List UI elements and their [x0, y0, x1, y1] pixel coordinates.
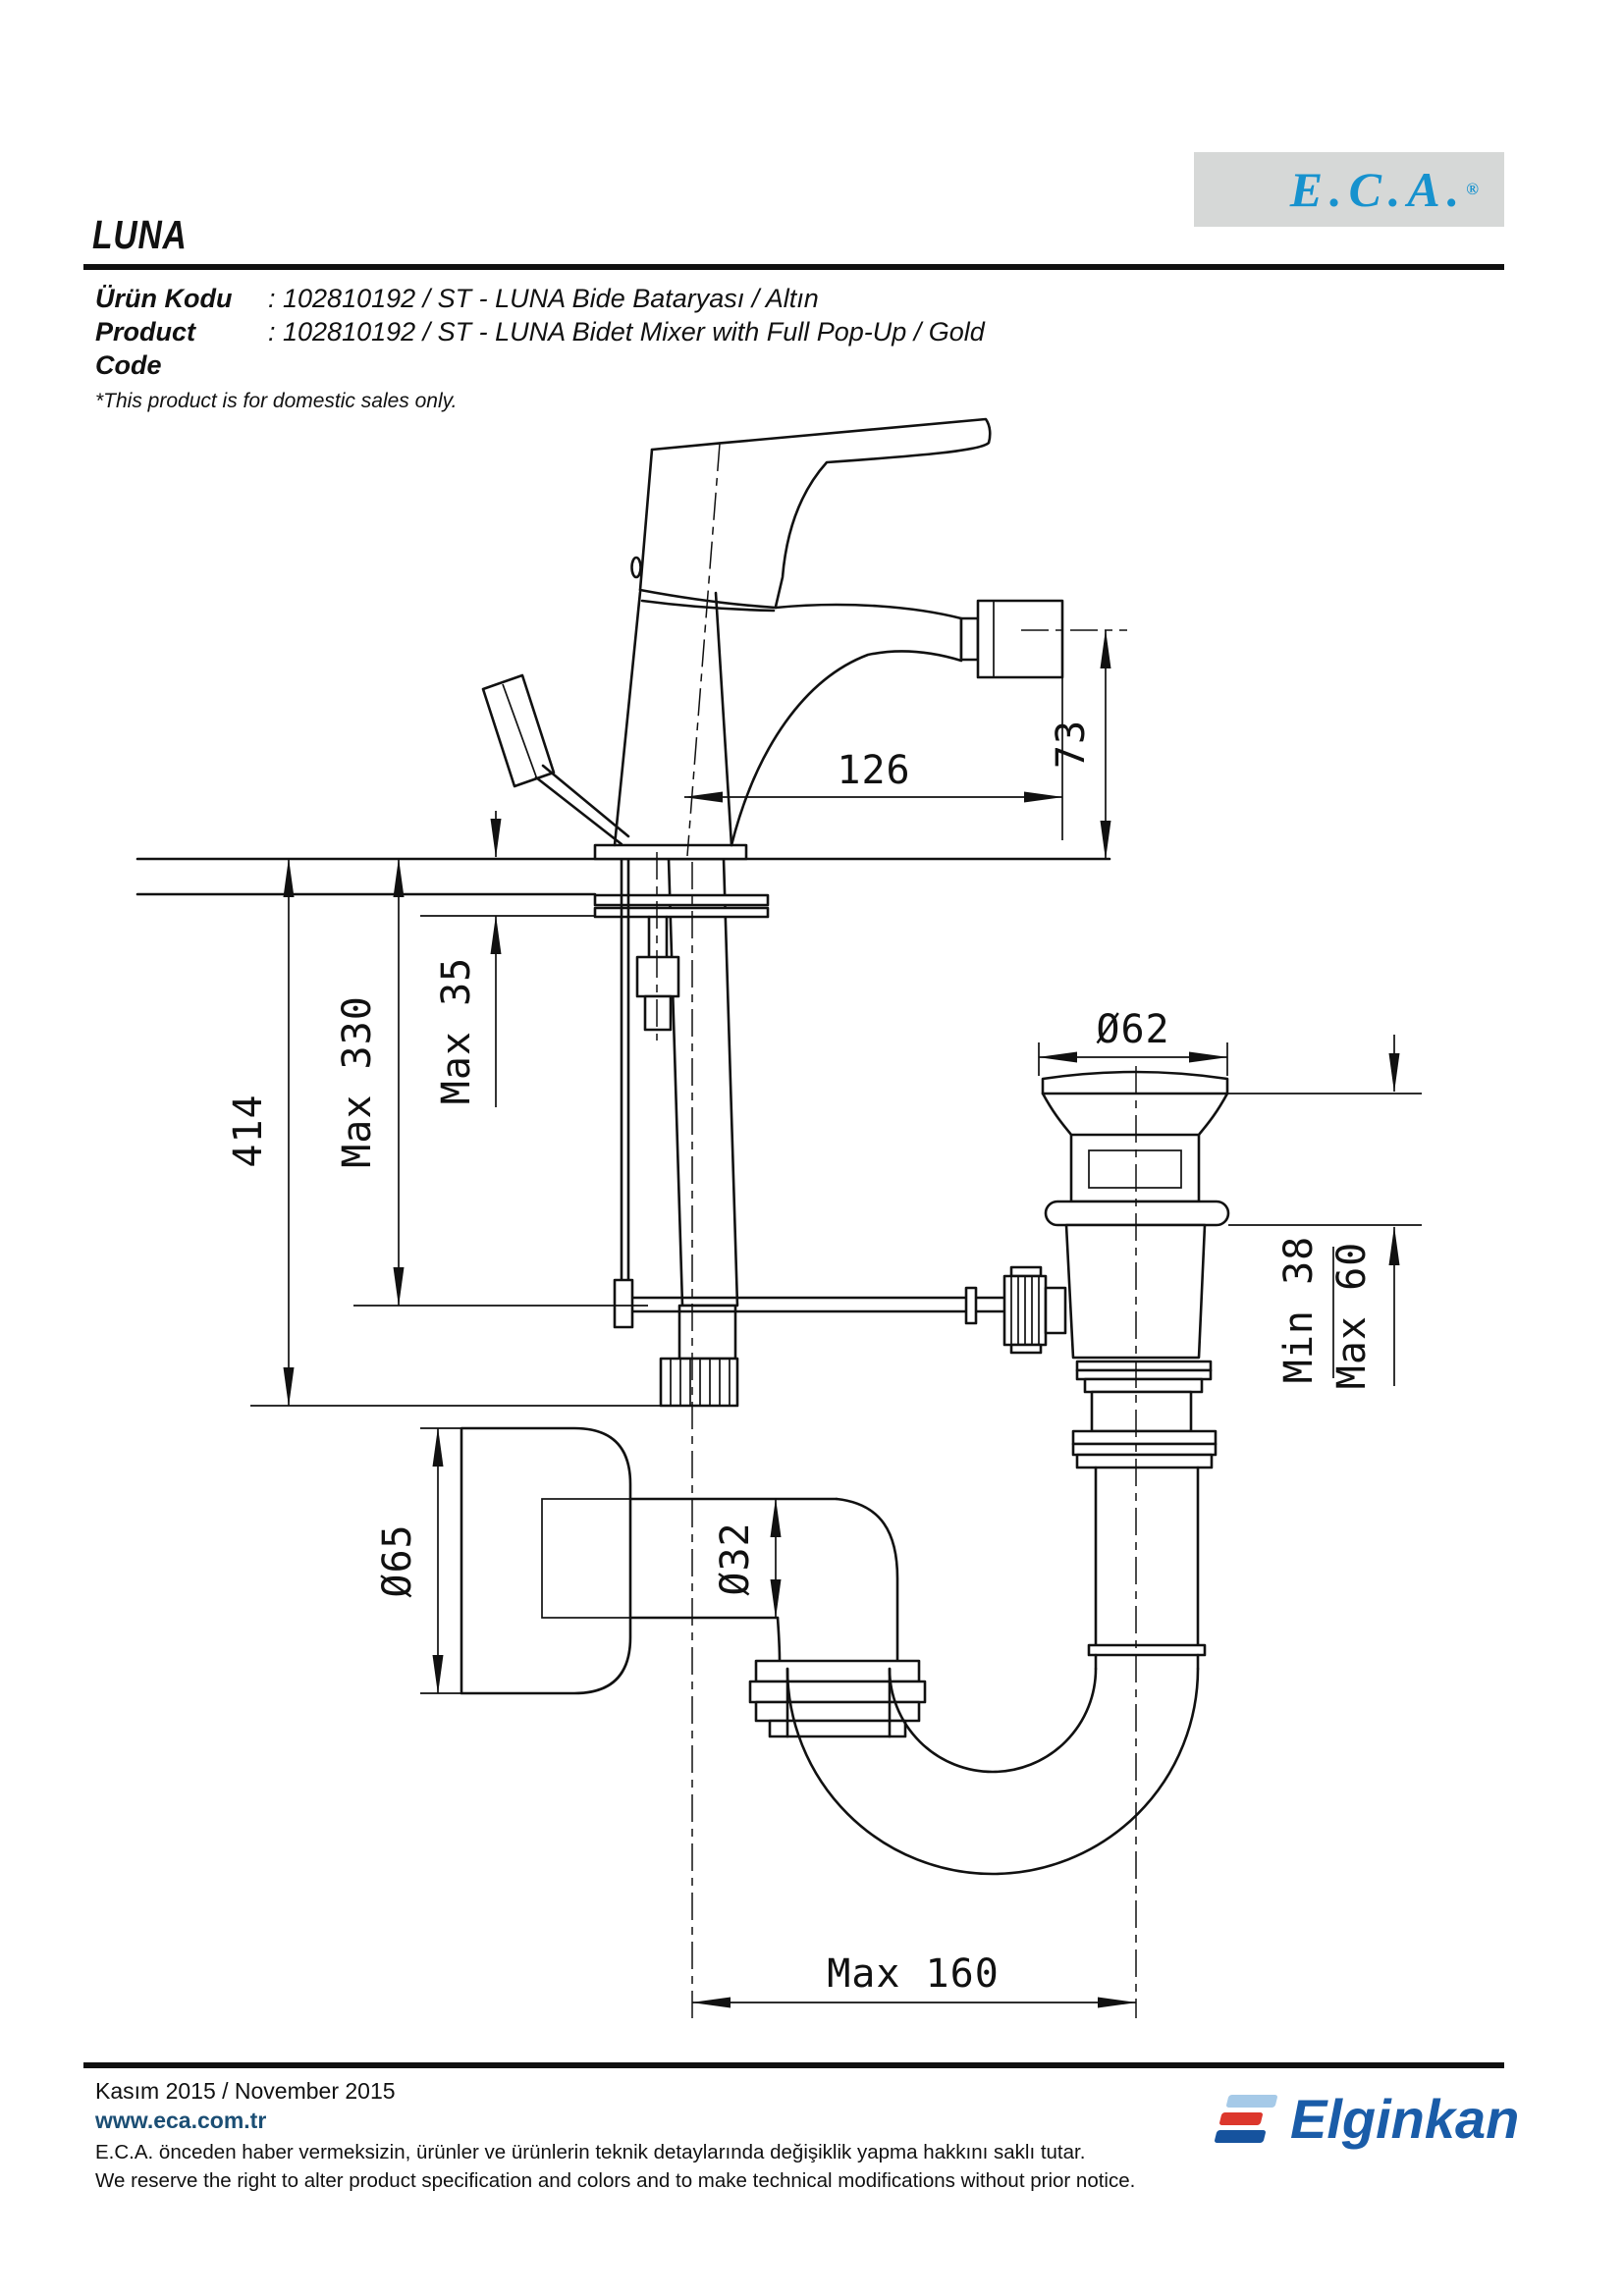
product-code-label-tr: Ürün Kodu: [95, 282, 268, 315]
faucet-body: [595, 419, 1062, 859]
footer-divider: [83, 2062, 1504, 2068]
product-code-label-en: Product Code: [95, 315, 268, 382]
eca-logo: E.C.A.®: [1194, 152, 1504, 227]
faucet-spout: [731, 605, 961, 845]
faucet-handle-front: [640, 450, 652, 590]
counter-deck: [137, 859, 1110, 1030]
product-code-row-tr: Ürün Kodu : 102810192 / ST - LUNA Bide B…: [95, 282, 985, 315]
dim-overall-height: 414: [226, 1094, 271, 1167]
dim-popup-deck-min: Min 38: [1276, 1236, 1322, 1384]
popup-flange: [1046, 1201, 1228, 1225]
dim-trap-pipe-diameter: Ø32: [713, 1522, 758, 1595]
domestic-sales-note: *This product is for domestic sales only…: [95, 385, 985, 418]
supply-hose: [661, 859, 737, 1406]
spray-outlet: [978, 601, 1062, 677]
eca-logo-text: E.C.A.: [1290, 161, 1467, 218]
dim-hose-length: Max 330: [335, 995, 380, 1168]
faucet-lever-handle: [652, 419, 990, 607]
centerlines: [657, 444, 1136, 2018]
datasheet-page: 126 73 414 Max 330 Max 35 Ø62: [0, 0, 1624, 2296]
product-code-row-en: Product Code : 102810192 / ST - LUNA Bid…: [95, 315, 985, 382]
dim-spout-height: 73: [1049, 720, 1094, 769]
faucet-base-plate: [595, 845, 746, 859]
disclaimer-english: We reserve the right to alter product sp…: [95, 2169, 1135, 2193]
dim-spout-reach: 126: [837, 748, 910, 793]
handle-screw: [632, 558, 641, 577]
dim-deck-thickness: Max 35: [434, 957, 479, 1105]
dim-trap-horizontal-max: Max 160: [827, 1951, 1000, 1997]
elginkan-bars-icon: [1216, 2093, 1276, 2146]
product-code-value-tr: : 102810192 / ST - LUNA Bide Bataryası /…: [268, 282, 819, 315]
page-title: LUNA: [92, 212, 188, 258]
dim-popup-deck-max: Max 60: [1329, 1242, 1375, 1390]
dim-popup-cap-diameter: Ø62: [1096, 1007, 1169, 1052]
website-link[interactable]: www.eca.com.tr: [95, 2108, 266, 2134]
popup-cap: [1043, 1072, 1227, 1094]
dimension-lines: 126 73 414 Max 330 Max 35 Ø62: [226, 630, 1422, 2002]
elginkan-logo-text: Elginkan: [1290, 2087, 1519, 2151]
popup-rod-paddle: [483, 675, 554, 786]
publication-date: Kasım 2015 / November 2015: [95, 2078, 396, 2105]
disclaimer-turkish: E.C.A. önceden haber vermeksizin, ürünle…: [95, 2141, 1085, 2164]
dim-wall-flange-diameter: Ø65: [375, 1523, 420, 1597]
product-code-value-en: : 102810192 / ST - LUNA Bidet Mixer with…: [268, 315, 985, 382]
siphon-trap: [461, 1428, 1198, 1874]
elginkan-logo: Elginkan: [1216, 2087, 1519, 2151]
wall-flange: [461, 1428, 630, 1693]
product-info: Ürün Kodu : 102810192 / ST - LUNA Bide B…: [95, 282, 985, 418]
spray-neck: [961, 618, 978, 660]
popup-rod-linkage: [483, 675, 1004, 1327]
header-divider: [83, 264, 1504, 270]
registered-trademark-icon: ®: [1466, 180, 1479, 199]
popup-drain: [1004, 1072, 1228, 1669]
